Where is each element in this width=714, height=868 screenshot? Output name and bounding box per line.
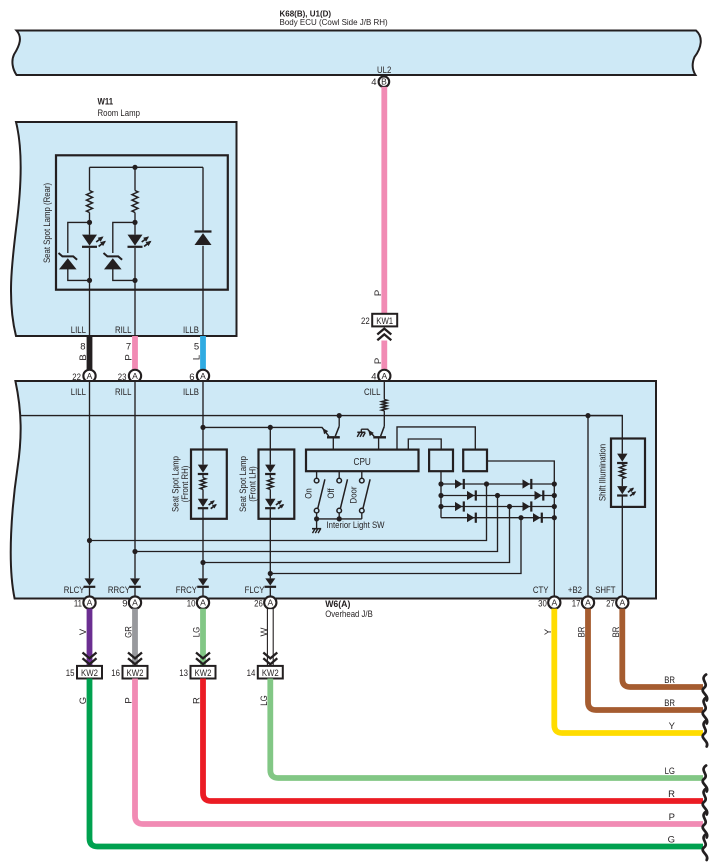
svg-text:Y: Y bbox=[543, 628, 554, 635]
svg-text:Room Lamp: Room Lamp bbox=[98, 108, 140, 119]
svg-text:LILL: LILL bbox=[71, 325, 86, 336]
svg-text:CILL: CILL bbox=[364, 387, 381, 398]
svg-text:Overhead J/B: Overhead J/B bbox=[325, 609, 373, 620]
svg-text:10: 10 bbox=[187, 599, 196, 610]
svg-text:G: G bbox=[668, 835, 675, 846]
svg-text:30: 30 bbox=[538, 599, 547, 610]
svg-text:Seat Spot Lamp (Rear): Seat Spot Lamp (Rear) bbox=[42, 183, 53, 263]
svg-text:ILLB: ILLB bbox=[183, 325, 199, 336]
svg-text:A: A bbox=[200, 371, 206, 381]
svg-text:KW2: KW2 bbox=[127, 668, 144, 679]
svg-text:RLCY: RLCY bbox=[64, 585, 85, 596]
svg-text:(Front LH): (Front LH) bbox=[248, 466, 259, 502]
svg-text:Door: Door bbox=[349, 487, 360, 504]
svg-text:5: 5 bbox=[194, 342, 199, 353]
svg-text:Shift Illumination: Shift Illumination bbox=[598, 444, 609, 501]
svg-text:On: On bbox=[303, 488, 314, 498]
svg-text:(Front RH): (Front RH) bbox=[180, 466, 191, 503]
svg-text:14: 14 bbox=[247, 668, 256, 679]
svg-text:RILL: RILL bbox=[115, 387, 132, 398]
svg-text:SHFT: SHFT bbox=[595, 585, 615, 596]
svg-text:13: 13 bbox=[179, 668, 188, 679]
svg-text:A: A bbox=[619, 598, 625, 608]
svg-text:Interior Light SW: Interior Light SW bbox=[327, 520, 385, 531]
svg-text:LG: LG bbox=[665, 766, 675, 777]
svg-text:A: A bbox=[87, 598, 93, 608]
svg-text:9: 9 bbox=[122, 599, 127, 610]
svg-text:RILL: RILL bbox=[115, 325, 132, 336]
svg-text:8: 8 bbox=[80, 342, 85, 353]
svg-text:A: A bbox=[381, 371, 387, 381]
svg-text:BR: BR bbox=[664, 675, 675, 686]
svg-text:R: R bbox=[192, 697, 203, 704]
svg-text:W11: W11 bbox=[98, 97, 114, 108]
svg-text:LG: LG bbox=[192, 627, 203, 637]
svg-text:+B2: +B2 bbox=[568, 585, 582, 596]
svg-text:A: A bbox=[87, 371, 93, 381]
svg-text:26: 26 bbox=[254, 599, 263, 610]
svg-text:CTY: CTY bbox=[533, 585, 549, 596]
svg-text:Y: Y bbox=[669, 721, 676, 732]
svg-text:L: L bbox=[192, 355, 203, 360]
svg-text:FLCY: FLCY bbox=[245, 585, 265, 596]
svg-text:LILL: LILL bbox=[71, 387, 86, 398]
svg-text:A: A bbox=[551, 598, 557, 608]
svg-text:22: 22 bbox=[361, 316, 370, 327]
svg-text:B: B bbox=[381, 77, 387, 87]
svg-text:P: P bbox=[373, 358, 384, 364]
svg-text:A: A bbox=[132, 598, 138, 608]
svg-text:A: A bbox=[132, 371, 138, 381]
svg-text:BR: BR bbox=[611, 626, 622, 637]
svg-text:17: 17 bbox=[572, 599, 581, 610]
svg-text:16: 16 bbox=[111, 668, 120, 679]
svg-text:27: 27 bbox=[606, 599, 615, 610]
svg-text:P: P bbox=[124, 697, 135, 703]
svg-text:W: W bbox=[259, 627, 270, 636]
svg-text:R: R bbox=[668, 789, 675, 800]
svg-text:KW1: KW1 bbox=[376, 316, 393, 327]
svg-text:FRCY: FRCY bbox=[176, 585, 198, 596]
svg-text:RRCY: RRCY bbox=[108, 585, 131, 596]
svg-text:P: P bbox=[669, 812, 675, 823]
svg-text:Body ECU (Cowl Side J/B RH): Body ECU (Cowl Side J/B RH) bbox=[280, 17, 388, 27]
svg-text:P: P bbox=[373, 290, 384, 296]
svg-text:GR: GR bbox=[124, 626, 135, 638]
svg-text:A: A bbox=[267, 598, 273, 608]
svg-text:KW2: KW2 bbox=[81, 668, 98, 679]
svg-text:7: 7 bbox=[126, 342, 131, 353]
svg-text:G: G bbox=[78, 697, 89, 704]
svg-text:15: 15 bbox=[66, 668, 75, 679]
svg-text:KW2: KW2 bbox=[195, 668, 212, 679]
svg-text:A: A bbox=[200, 598, 206, 608]
svg-text:LG: LG bbox=[259, 695, 270, 705]
svg-text:P: P bbox=[124, 354, 135, 360]
svg-text:CPU: CPU bbox=[354, 457, 371, 468]
svg-text:V: V bbox=[78, 628, 89, 635]
svg-text:BR: BR bbox=[577, 626, 588, 637]
svg-text:11: 11 bbox=[74, 599, 82, 610]
svg-text:KW2: KW2 bbox=[262, 668, 279, 679]
svg-text:4: 4 bbox=[371, 77, 376, 88]
svg-text:ILLB: ILLB bbox=[183, 387, 199, 398]
svg-text:Off: Off bbox=[326, 488, 337, 498]
svg-text:B: B bbox=[78, 354, 89, 360]
svg-text:UL2: UL2 bbox=[377, 65, 391, 76]
svg-text:A: A bbox=[585, 598, 591, 608]
svg-text:BR: BR bbox=[664, 698, 675, 709]
